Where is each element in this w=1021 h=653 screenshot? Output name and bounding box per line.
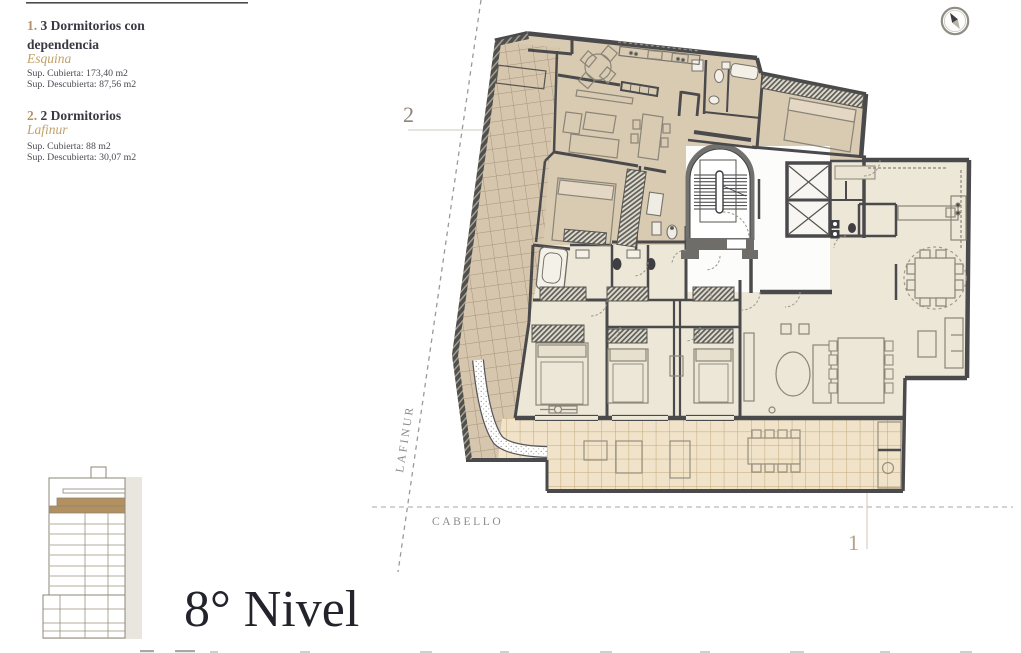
svg-text:2: 2 xyxy=(403,102,414,127)
svg-text:1: 1 xyxy=(848,530,859,555)
svg-text:CABELLO: CABELLO xyxy=(432,516,503,528)
